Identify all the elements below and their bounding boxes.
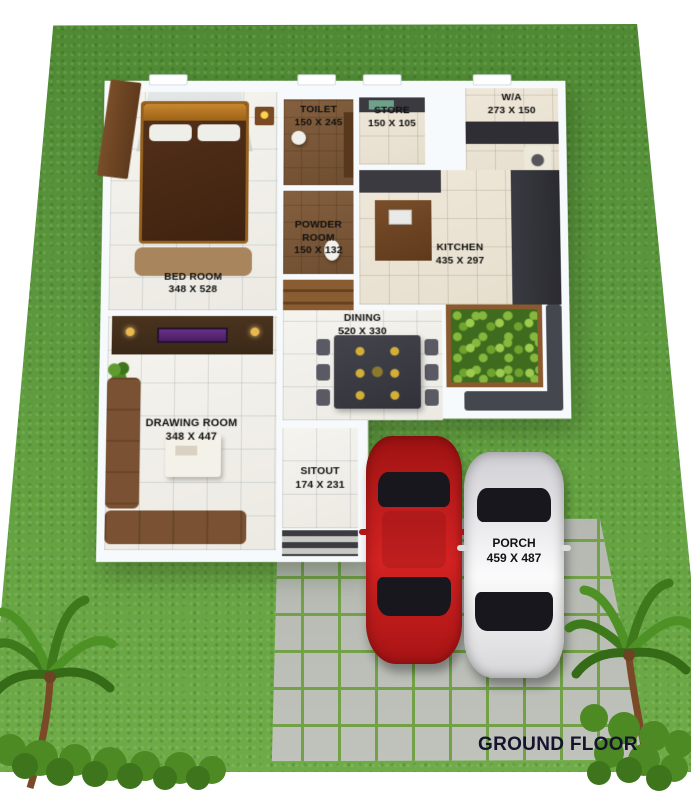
window-sill bbox=[473, 74, 512, 85]
courtyard-sofa bbox=[464, 391, 563, 410]
dining-dims: 520 X 330 bbox=[283, 325, 442, 338]
car-mirror bbox=[359, 529, 369, 535]
sitout-label: SITOUT 174 X 231 bbox=[282, 465, 358, 492]
washing-machine bbox=[524, 146, 552, 172]
room-washing-area: W/A 273 X 150 bbox=[465, 88, 559, 179]
dining-name: DINING bbox=[283, 312, 442, 325]
kitchen-dims: 435 X 297 bbox=[359, 255, 560, 268]
bedroom-label: BED ROOM 348 X 528 bbox=[109, 271, 278, 297]
drawing-dims: 348 X 447 bbox=[106, 430, 277, 444]
sofa bbox=[104, 510, 246, 544]
kitchen-label: KITCHEN 435 X 297 bbox=[359, 242, 560, 268]
double-bed bbox=[139, 101, 249, 243]
window-sill bbox=[363, 74, 402, 85]
room-sitout: SITOUT 174 X 231 bbox=[282, 428, 358, 528]
bedroom-dims: 348 X 528 bbox=[109, 284, 278, 297]
toilet-dims: 150 X 245 bbox=[284, 117, 354, 130]
nightstand-lamp bbox=[255, 107, 274, 126]
courtyard-garden bbox=[446, 305, 564, 411]
powder-label: POWDER ROOM 150 X 132 bbox=[283, 219, 353, 258]
floor-plan-scene: BED ROOM 348 X 528 TOILET 150 X 245 POWD… bbox=[0, 0, 691, 795]
toilet-name: TOILET bbox=[284, 104, 354, 117]
drawing-label: DRAWING ROOM 348 X 447 bbox=[106, 416, 277, 444]
dining-chair bbox=[425, 389, 439, 405]
window-sill bbox=[297, 74, 336, 85]
entrance-step bbox=[282, 530, 358, 556]
tv-screen bbox=[157, 328, 228, 343]
dining-table bbox=[334, 335, 421, 408]
dining-chair bbox=[316, 389, 330, 405]
drawing-name: DRAWING ROOM bbox=[106, 416, 276, 430]
room-dining: DINING 520 X 330 bbox=[283, 310, 443, 420]
ground-floor-area-title: GROUND FLOOR AREA 1160 sqft bbox=[478, 682, 638, 795]
dining-chair bbox=[425, 364, 439, 380]
room-store: STORE 150 X 105 bbox=[359, 97, 425, 164]
wall-lamp-icon bbox=[126, 328, 135, 337]
wall-lamp-icon bbox=[250, 328, 259, 337]
wa-counter bbox=[466, 122, 559, 144]
dining-chair bbox=[316, 339, 330, 355]
car-rear-window bbox=[477, 488, 551, 522]
bedroom-name: BED ROOM bbox=[109, 271, 277, 284]
wa-dims: 273 X 150 bbox=[465, 105, 558, 118]
sitout-dims: 174 X 231 bbox=[282, 479, 358, 492]
car-roof bbox=[382, 511, 445, 568]
car-rear-window bbox=[378, 472, 449, 506]
pillow bbox=[197, 124, 240, 141]
store-dims: 150 X 105 bbox=[359, 118, 425, 131]
powder-name: POWDER ROOM bbox=[283, 219, 353, 245]
bed-headboard bbox=[144, 104, 247, 121]
kitchen-counter bbox=[359, 170, 441, 193]
kitchen-name: KITCHEN bbox=[359, 242, 560, 255]
store-label: STORE 150 X 105 bbox=[359, 105, 425, 130]
tv-media-wall bbox=[112, 316, 274, 354]
footer-line1: GROUND FLOOR bbox=[478, 732, 638, 757]
planter-box bbox=[446, 305, 543, 388]
room-powder: POWDER ROOM 150 X 132 bbox=[283, 191, 353, 274]
toilet-label: TOILET 150 X 245 bbox=[284, 104, 354, 129]
room-kitchen: KITCHEN 435 X 297 bbox=[359, 170, 561, 304]
powder-dims: 150 X 132 bbox=[283, 245, 353, 258]
wash-basin bbox=[291, 131, 306, 145]
store-name: STORE bbox=[359, 105, 425, 118]
car-windshield bbox=[377, 577, 452, 616]
dining-chair bbox=[424, 339, 438, 355]
dining-label: DINING 520 X 330 bbox=[283, 312, 442, 338]
wa-name: W/A bbox=[465, 92, 558, 105]
window-sill bbox=[149, 74, 188, 85]
room-drawing: DRAWING ROOM 348 X 447 bbox=[104, 316, 277, 550]
sitout-name: SITOUT bbox=[282, 465, 358, 478]
wa-label: W/A 273 X 150 bbox=[465, 92, 558, 117]
pillow bbox=[149, 124, 192, 141]
red-car bbox=[366, 436, 462, 664]
room-toilet: TOILET 150 X 245 bbox=[283, 99, 353, 185]
palm-tree-left bbox=[0, 560, 240, 792]
kitchen-counter bbox=[511, 170, 562, 304]
kitchen-sink bbox=[389, 210, 412, 225]
dining-chair bbox=[316, 364, 330, 380]
